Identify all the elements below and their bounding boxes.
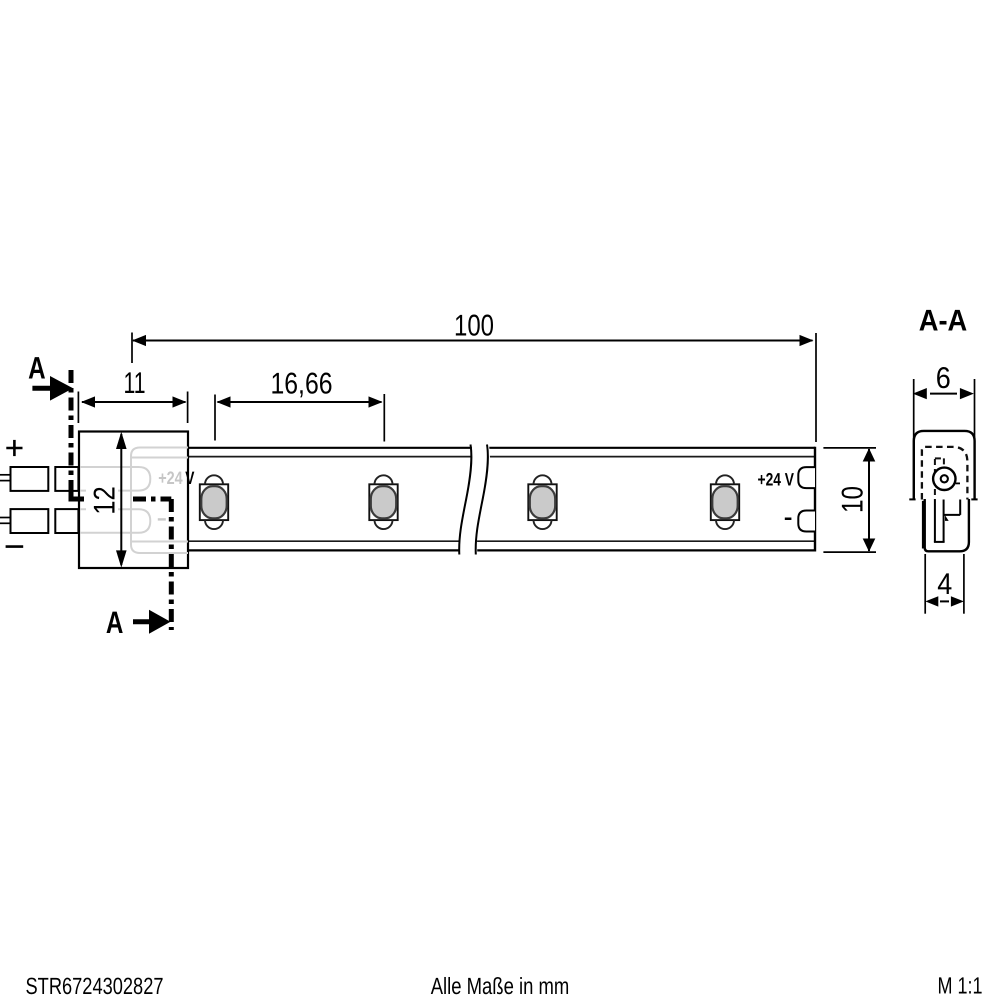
svg-text:+24 V: +24 V [758, 470, 795, 490]
svg-text:Alle Maße in mm: Alle Maße in mm [431, 973, 570, 999]
svg-text:16,66: 16,66 [271, 368, 333, 401]
svg-text:100: 100 [454, 310, 494, 343]
svg-text:STR6724302827: STR6724302827 [26, 973, 164, 999]
svg-text:10: 10 [836, 486, 869, 513]
svg-text:A-A: A-A [919, 304, 968, 337]
svg-text:4: 4 [937, 568, 952, 601]
svg-text:A: A [28, 351, 46, 386]
svg-text:11: 11 [124, 367, 146, 400]
svg-text:M 1:1: M 1:1 [938, 973, 983, 999]
svg-text:V: V [185, 468, 194, 488]
svg-text:6: 6 [936, 362, 951, 395]
svg-text:A: A [106, 605, 124, 640]
svg-text:12: 12 [89, 486, 122, 515]
svg-text:+24: +24 [158, 468, 183, 488]
